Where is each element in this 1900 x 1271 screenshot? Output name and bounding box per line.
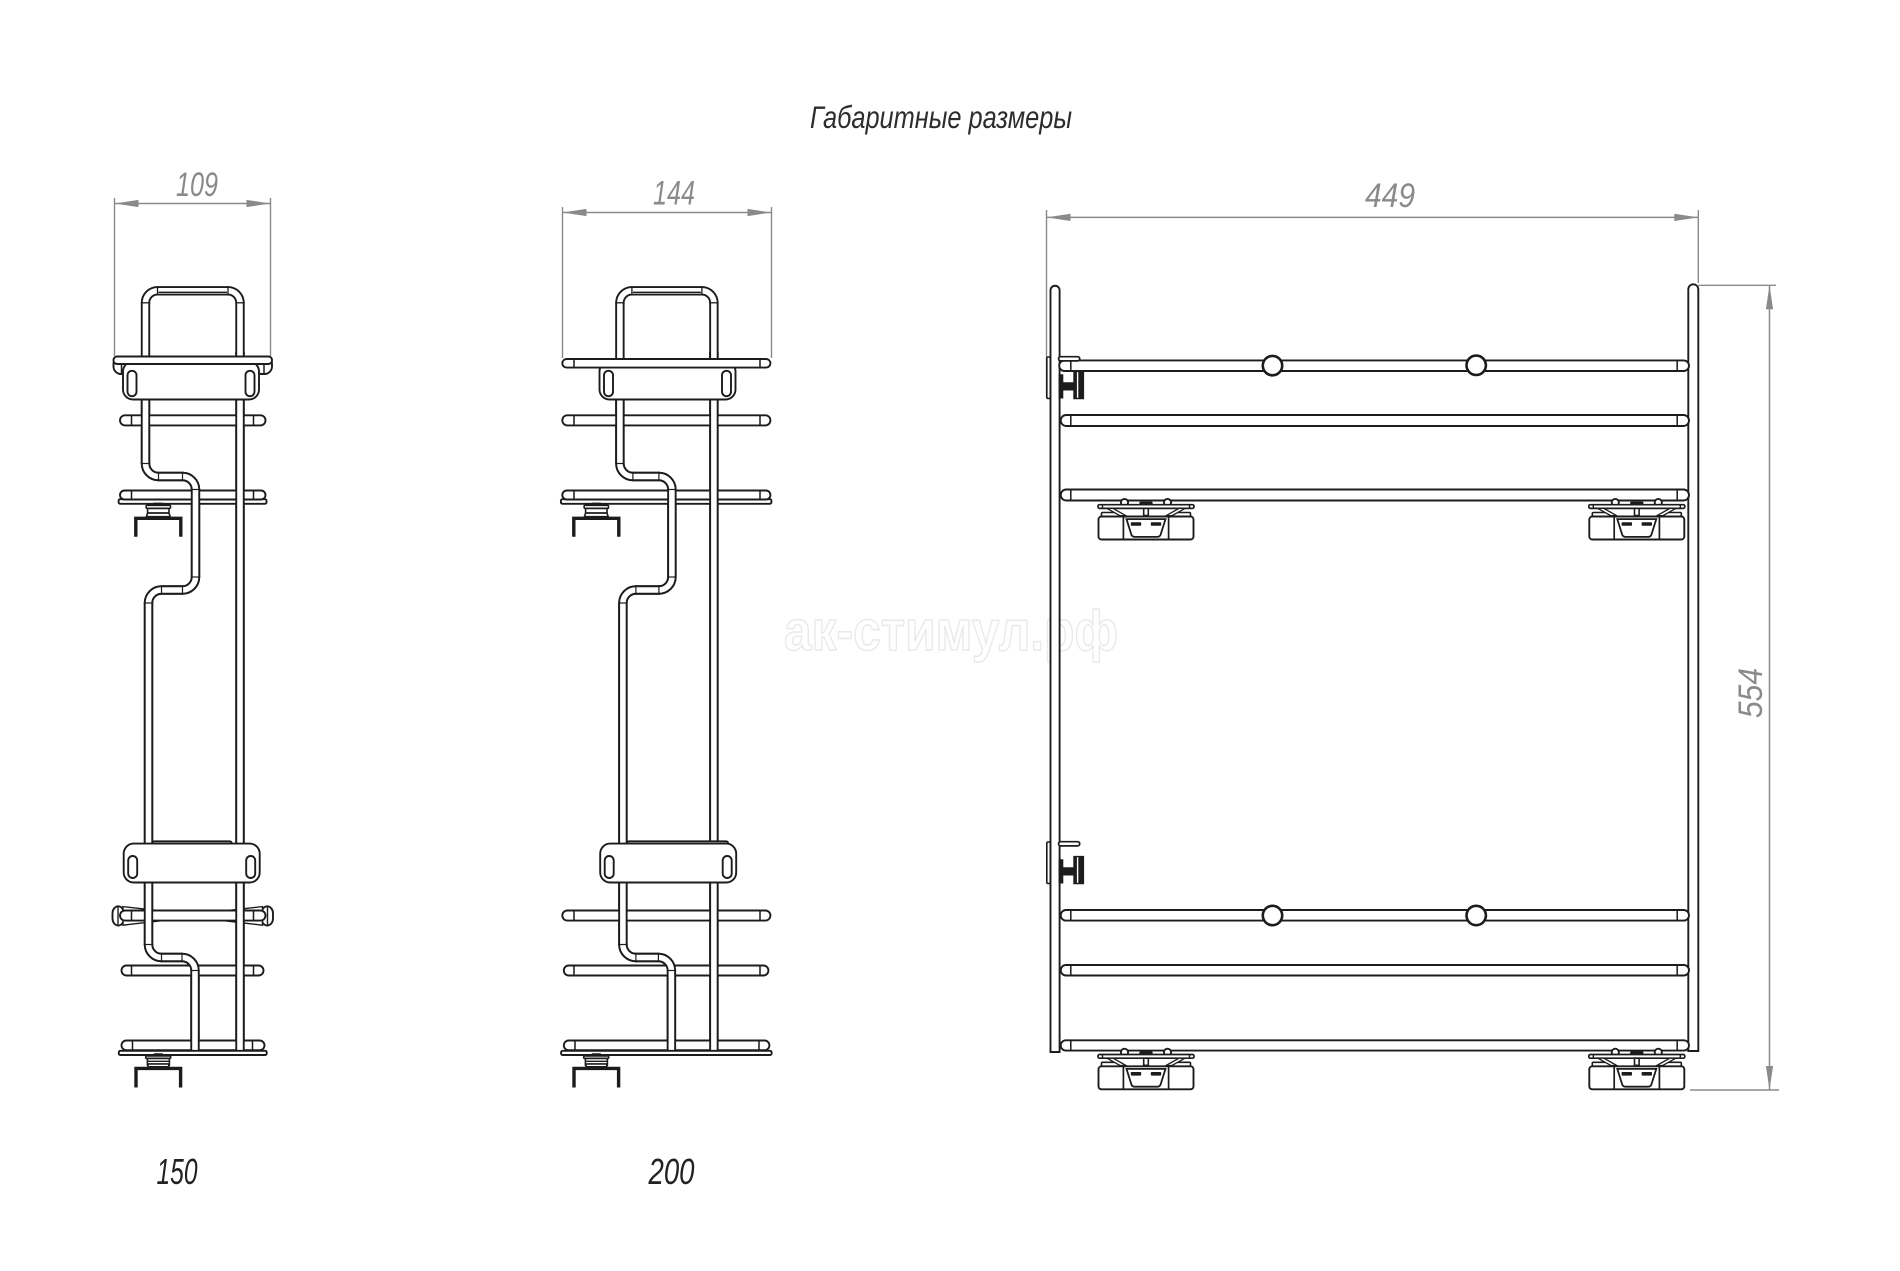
- svg-text:ак-стимул.рф: ак-стимул.рф: [784, 599, 1118, 663]
- svg-text:150: 150: [157, 1151, 198, 1192]
- svg-text:144: 144: [653, 175, 695, 213]
- svg-text:Габаритные размеры: Габаритные размеры: [810, 99, 1072, 135]
- svg-text:554: 554: [1732, 668, 1770, 718]
- svg-text:109: 109: [176, 166, 218, 204]
- svg-text:200: 200: [648, 1151, 695, 1192]
- svg-text:449: 449: [1365, 177, 1415, 215]
